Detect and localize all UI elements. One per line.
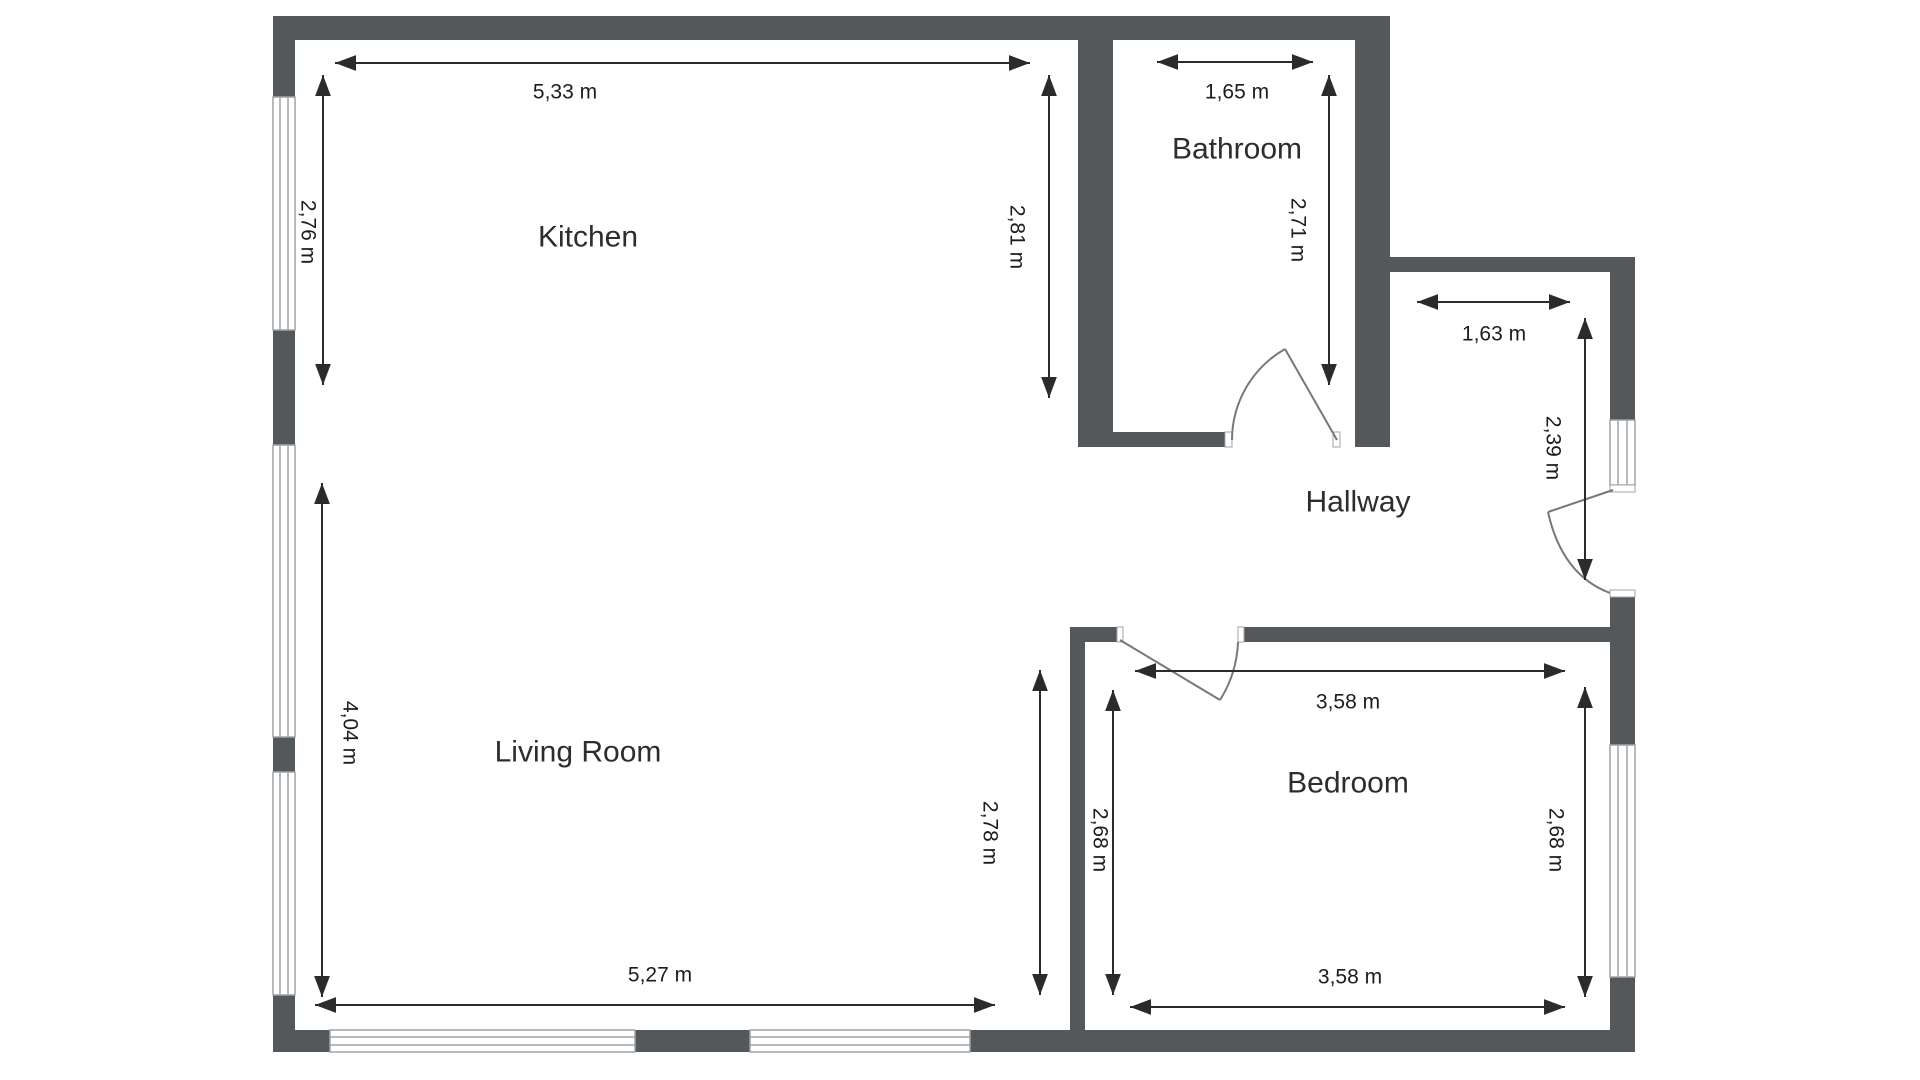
kitchen-bathroom-divider — [1078, 16, 1113, 447]
bedroom-door-jamb-left — [1117, 627, 1123, 642]
windows — [273, 97, 1635, 1052]
entry-door-jamb-top — [1610, 485, 1635, 492]
room-label-kitchen: Kitchen — [538, 221, 638, 254]
kitchen-window — [273, 97, 295, 330]
dim-kitchen-height-left: 2,76 m — [297, 200, 320, 264]
dim-kitchen-width: 5,33 m — [533, 81, 597, 104]
dimension-arrows — [315, 62, 1585, 1007]
living-room-window-1 — [273, 445, 295, 737]
entry-door-jamb-bottom — [1610, 590, 1635, 597]
bottom-wall-left-corner — [273, 1030, 330, 1052]
top-wall — [273, 16, 1390, 40]
dim-bedroom-height-left: 2,68 m — [1089, 808, 1112, 872]
bottom-wall-pier — [635, 1030, 750, 1052]
right-wall-bottom — [1610, 977, 1635, 1052]
floor-plan-page: 5,33 m 1,65 m 1,63 m 3,58 m 3,58 m 5,27 … — [0, 0, 1920, 1080]
left-wall-mid — [273, 330, 295, 445]
living-room-window-4 — [750, 1030, 970, 1052]
floor-plan-drawing: 5,33 m 1,65 m 1,63 m 3,58 m 3,58 m 5,27 … — [0, 0, 1920, 1080]
dim-bathroom-width: 1,65 m — [1205, 81, 1269, 104]
bathroom-bottom-wall — [1113, 432, 1225, 447]
hallway-top-wall — [1390, 257, 1635, 272]
living-room-window-2 — [273, 772, 295, 995]
dim-bedroom-width-bottom: 3,58 m — [1318, 966, 1382, 989]
dim-living-width: 5,27 m — [628, 964, 692, 987]
bedroom-window — [1610, 745, 1635, 977]
room-label-living-room: Living Room — [495, 736, 662, 769]
left-wall-top — [273, 16, 295, 97]
entry-door-leaf — [1548, 490, 1613, 512]
dim-bedroom-height-right: 2,68 m — [1545, 808, 1568, 872]
bathroom-right-wall — [1355, 16, 1390, 447]
bedroom-door-jamb-right — [1238, 627, 1244, 642]
dim-bedroom-width-top: 3,58 m — [1316, 691, 1380, 714]
dim-hallway-width: 1,63 m — [1462, 323, 1526, 346]
bottom-wall-right — [970, 1030, 1635, 1052]
right-wall-hallway-top — [1610, 257, 1635, 420]
dim-bathroom-height: 2,71 m — [1287, 198, 1310, 262]
dim-living-height-right: 2,78 m — [979, 801, 1002, 865]
room-labels: Kitchen Bathroom Hallway Living Room Bed… — [495, 133, 1411, 800]
walls — [273, 16, 1635, 1052]
bedroom-top-wall-right — [1244, 627, 1610, 642]
room-label-bathroom: Bathroom — [1172, 133, 1302, 166]
bathroom-door-jamb-left — [1225, 432, 1232, 447]
dim-kitchen-height-right: 2,81 m — [1006, 205, 1029, 269]
entry-door-swing-arc — [1548, 512, 1610, 593]
dim-hallway-height: 2,39 m — [1542, 416, 1565, 480]
hallway-window — [1610, 420, 1635, 485]
room-label-hallway: Hallway — [1305, 486, 1410, 519]
living-room-window-3 — [330, 1030, 635, 1052]
right-wall-mid — [1610, 597, 1635, 745]
left-wall-pier — [273, 737, 295, 772]
bathroom-door-swing-arc — [1232, 349, 1285, 440]
living-bedroom-divider — [1070, 642, 1085, 1030]
bedroom-top-wall-left — [1070, 627, 1117, 642]
dim-living-height-left: 4,04 m — [339, 701, 362, 765]
room-label-bedroom: Bedroom — [1287, 767, 1409, 800]
